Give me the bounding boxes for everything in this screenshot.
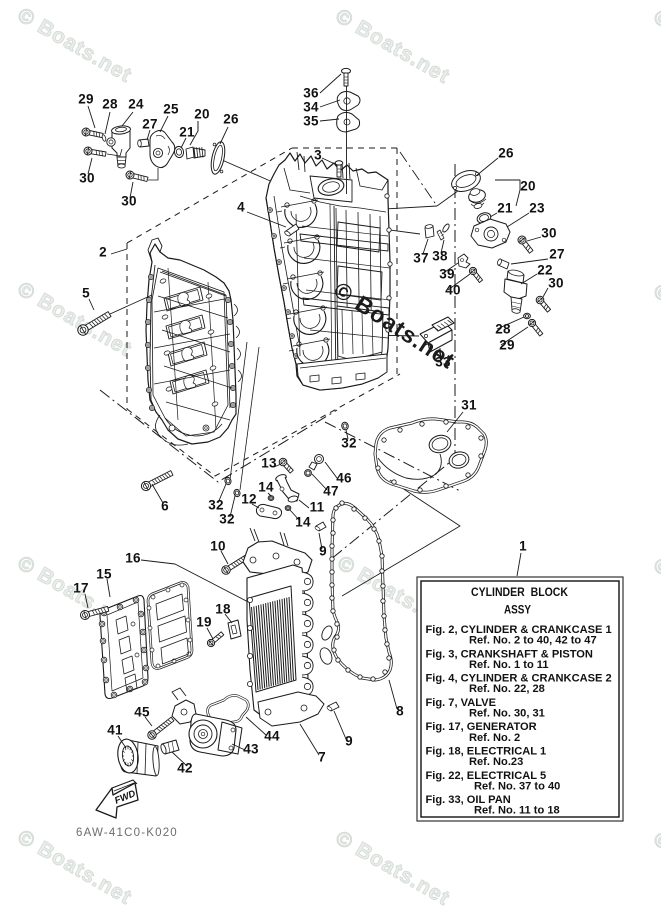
svg-text:38: 38 <box>432 249 448 264</box>
svg-text:44: 44 <box>264 729 280 744</box>
svg-text:31: 31 <box>461 398 477 413</box>
svg-text:21: 21 <box>497 201 513 216</box>
svg-text:29: 29 <box>78 92 94 107</box>
svg-text:9: 9 <box>319 544 327 559</box>
svg-text:24: 24 <box>128 97 144 112</box>
svg-text:5: 5 <box>82 286 90 301</box>
svg-text:© Boats.net: © Boats.net <box>650 553 661 637</box>
svg-text:19: 19 <box>196 615 212 630</box>
svg-text:16: 16 <box>125 551 141 566</box>
svg-text:36: 36 <box>303 86 319 101</box>
svg-text:20: 20 <box>520 179 536 194</box>
svg-text:47: 47 <box>323 484 339 499</box>
svg-text:© Boats.net: © Boats.net <box>650 5 661 89</box>
svg-text:21: 21 <box>179 125 195 140</box>
svg-text:34: 34 <box>303 100 319 115</box>
svg-text:2: 2 <box>99 245 107 260</box>
svg-text:30: 30 <box>121 194 137 209</box>
svg-text:1: 1 <box>519 539 527 554</box>
svg-text:23: 23 <box>529 201 545 216</box>
svg-text:Ref. No. 1 to 11: Ref. No. 1 to 11 <box>469 659 549 671</box>
svg-text:30: 30 <box>541 226 557 241</box>
svg-text:26: 26 <box>223 112 239 127</box>
svg-text:10: 10 <box>210 539 226 554</box>
svg-text:6AW-41C0-K020: 6AW-41C0-K020 <box>76 827 178 839</box>
svg-text:13: 13 <box>261 456 277 471</box>
svg-text:© Boats.net: © Boats.net <box>14 277 136 361</box>
svg-text:© Boats.net: © Boats.net <box>650 279 661 363</box>
svg-text:40: 40 <box>445 283 461 298</box>
svg-text:6: 6 <box>161 499 169 514</box>
svg-text:41: 41 <box>107 723 123 738</box>
svg-text:30: 30 <box>79 171 95 186</box>
svg-text:Ref. No. 2 to 40, 42 to 47: Ref. No. 2 to 40, 42 to 47 <box>469 635 597 647</box>
svg-text:37: 37 <box>413 251 429 266</box>
svg-text:43: 43 <box>243 742 259 757</box>
svg-text:32: 32 <box>219 512 235 527</box>
svg-text:30: 30 <box>548 276 564 291</box>
svg-text:8: 8 <box>396 704 404 719</box>
svg-text:Ref. No. 37 to 40: Ref. No. 37 to 40 <box>474 780 560 792</box>
svg-text:12: 12 <box>241 492 257 507</box>
svg-text:32: 32 <box>208 498 224 513</box>
svg-text:14: 14 <box>258 480 274 495</box>
svg-text:26: 26 <box>498 146 514 161</box>
svg-text:14: 14 <box>295 515 311 530</box>
svg-text:20: 20 <box>194 107 210 122</box>
svg-text:27: 27 <box>549 247 565 262</box>
svg-text:Ref. No. 2: Ref. No. 2 <box>469 732 520 744</box>
svg-text:7: 7 <box>318 750 326 765</box>
svg-text:39: 39 <box>439 267 455 282</box>
svg-text:4: 4 <box>237 200 245 215</box>
svg-text:35: 35 <box>303 114 319 129</box>
svg-text:28: 28 <box>495 322 511 337</box>
svg-text:32: 32 <box>341 436 357 451</box>
svg-text:15: 15 <box>96 567 112 582</box>
svg-text:Ref. No. 22, 28: Ref. No. 22, 28 <box>469 683 545 695</box>
svg-text:ASSY: ASSY <box>504 603 531 617</box>
svg-text:45: 45 <box>134 705 150 720</box>
svg-text:11: 11 <box>310 500 325 515</box>
svg-text:© Boats.net: © Boats.net <box>332 826 454 910</box>
svg-text:17: 17 <box>73 581 89 596</box>
svg-text:42: 42 <box>177 761 193 776</box>
svg-text:CYLINDER BLOCK: CYLINDER BLOCK <box>471 585 568 599</box>
svg-text:28: 28 <box>102 97 118 112</box>
svg-text:© Boats.net: © Boats.net <box>332 4 454 88</box>
svg-text:29: 29 <box>499 338 515 353</box>
svg-text:3: 3 <box>314 148 322 163</box>
svg-text:© Boats.net: © Boats.net <box>650 827 661 911</box>
svg-text:9: 9 <box>345 734 353 749</box>
svg-text:27: 27 <box>142 117 158 132</box>
svg-text:25: 25 <box>163 102 179 117</box>
svg-text:18: 18 <box>215 602 231 617</box>
svg-text:Ref. No.23: Ref. No.23 <box>469 756 523 768</box>
svg-text:© Boats.net: © Boats.net <box>14 3 136 87</box>
svg-text:Ref. No. 11 to 18: Ref. No. 11 to 18 <box>474 805 560 817</box>
svg-text:Ref. No. 30, 31: Ref. No. 30, 31 <box>469 708 545 720</box>
